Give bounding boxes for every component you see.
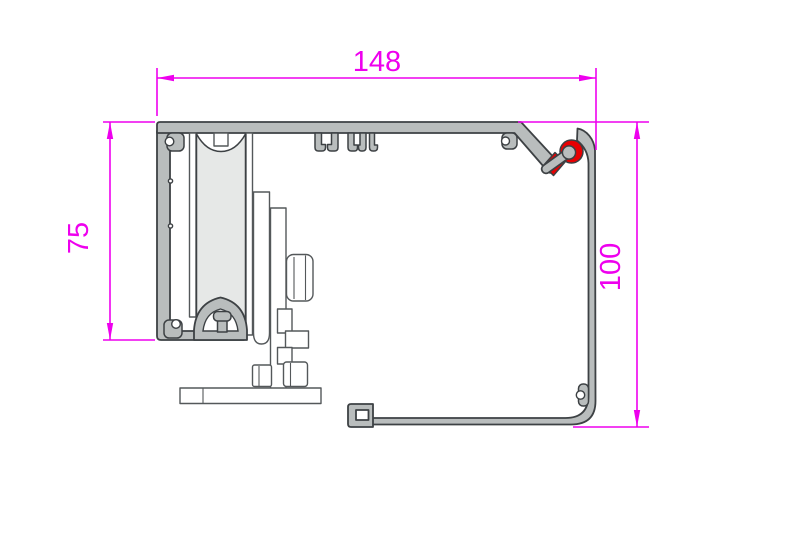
bar-end-hook-hole (502, 137, 510, 145)
dimension-right-height-label: 100 (595, 243, 627, 291)
pocket-arm-bulb (562, 146, 575, 159)
hanger-plate (254, 192, 270, 344)
profile-tslot-hook (348, 133, 358, 151)
wall-nib (168, 224, 172, 228)
profile-tslot-hook (359, 133, 367, 151)
roller-carriage (190, 133, 253, 340)
arrowhead (107, 122, 113, 139)
screw-port-hole (165, 137, 174, 146)
wall-nib (168, 179, 172, 183)
wheel-axle-slot (214, 133, 228, 146)
adjust-bolt-head (287, 255, 314, 302)
screw-port-hole (172, 320, 181, 329)
profile-tslot-hook (315, 133, 326, 151)
arrowhead (634, 410, 640, 427)
gasket-and-right-wall (348, 129, 596, 428)
technical-drawing: 148 75 100 (0, 0, 800, 539)
wall-notch-hole (576, 391, 584, 399)
profile-tslot-hook (328, 133, 339, 151)
carriage-side-plate (190, 133, 197, 317)
arrowhead (157, 75, 174, 81)
profile-tslot-hook (370, 133, 378, 151)
arrowhead (579, 75, 596, 81)
profile-right-wall (372, 129, 596, 425)
arrowhead (634, 122, 640, 139)
dimension-width-label: 148 (353, 46, 401, 78)
spacer-block (278, 309, 293, 333)
arrowhead (107, 323, 113, 340)
bottom-wall-end-hook (348, 404, 373, 427)
washer-block (286, 331, 309, 348)
door-bracket (180, 388, 321, 404)
track-rail-cap (214, 312, 232, 322)
drawing-canvas: 148 75 100 (0, 0, 800, 539)
lock-nut (253, 365, 272, 387)
dimension-left-height: 75 (63, 122, 155, 340)
dimension-right-height: 100 (518, 122, 649, 427)
carriage-side-plate (246, 133, 253, 335)
dimension-left-height-label: 75 (63, 222, 95, 254)
lock-nut (284, 362, 308, 387)
